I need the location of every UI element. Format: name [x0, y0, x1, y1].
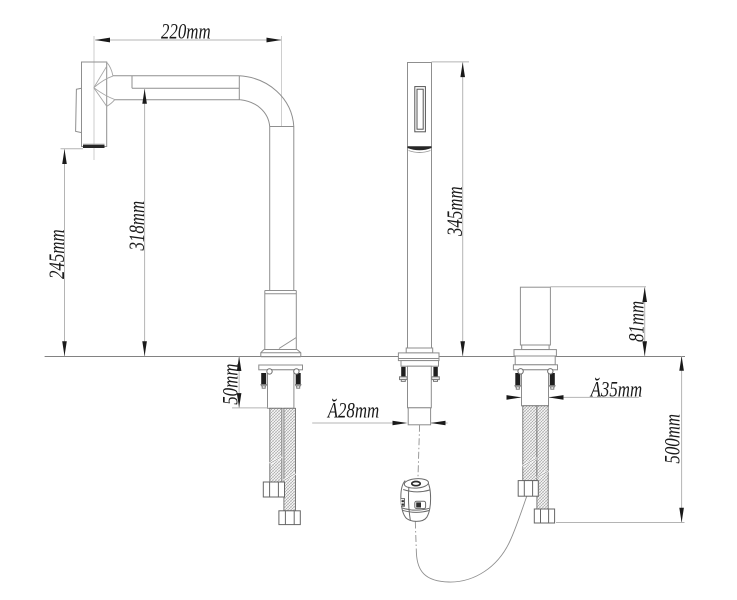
svg-text:220mm: 220mm [161, 19, 211, 44]
svg-text:318mm: 318mm [125, 201, 150, 252]
svg-text:Ă28mm: Ă28mm [326, 398, 379, 423]
svg-text:500mm: 500mm [660, 414, 685, 464]
svg-text:245mm: 245mm [45, 229, 70, 279]
svg-text:81mm: 81mm [624, 301, 649, 342]
svg-text:345mm: 345mm [443, 186, 468, 237]
svg-text:50mm: 50mm [218, 364, 243, 405]
svg-text:Ă35mm: Ă35mm [589, 377, 642, 402]
